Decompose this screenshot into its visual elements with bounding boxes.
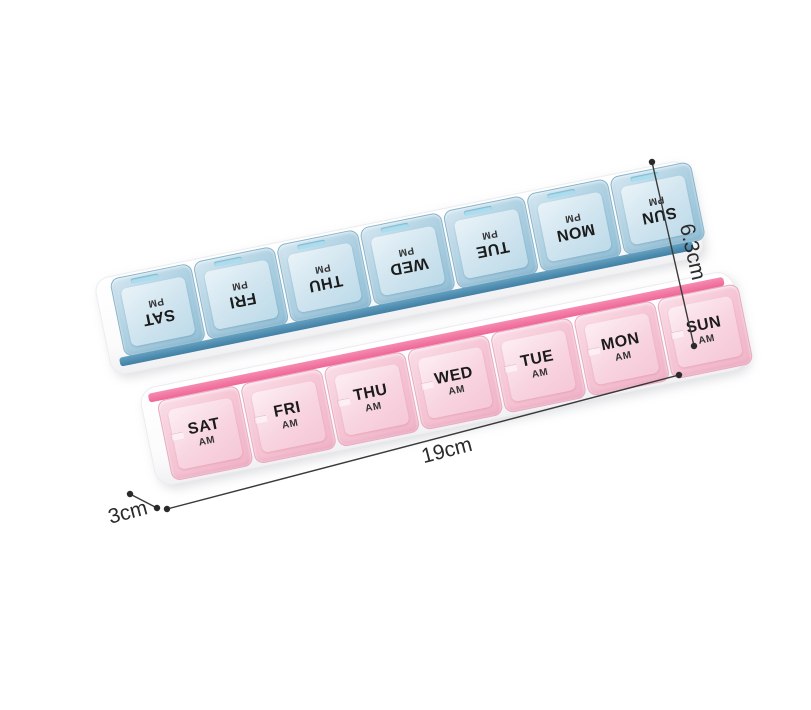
product-photo-pill-organizer: SAT PM FRI PM THU PM bbox=[0, 0, 811, 710]
dimension-lines bbox=[0, 0, 811, 710]
